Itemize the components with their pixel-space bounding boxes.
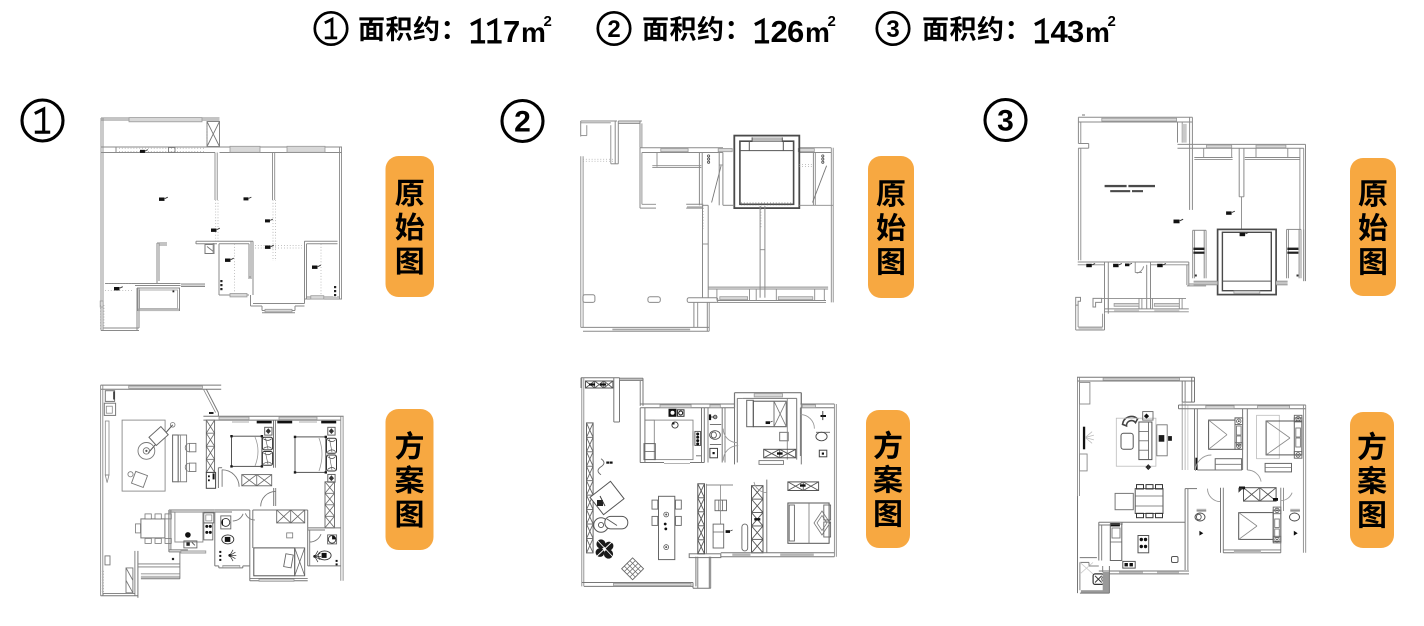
svg-text:m: m (1085, 17, 1110, 48)
svg-text:7: 7 (503, 14, 520, 49)
svg-text:4: 4 (1051, 14, 1069, 49)
svg-text:m: m (805, 17, 830, 48)
svg-text:6: 6 (787, 14, 804, 49)
svg-text:2: 2 (607, 16, 620, 43)
svg-text:3: 3 (886, 16, 899, 43)
svg-text:2: 2 (514, 106, 531, 139)
svg-text:m: m (521, 17, 546, 48)
svg-text:3: 3 (1067, 14, 1084, 49)
svg-text:2: 2 (544, 13, 552, 30)
svg-text:2: 2 (771, 14, 788, 49)
svg-text:2: 2 (1108, 13, 1116, 30)
svg-text:2: 2 (828, 13, 836, 30)
svg-text:3: 3 (997, 105, 1014, 138)
